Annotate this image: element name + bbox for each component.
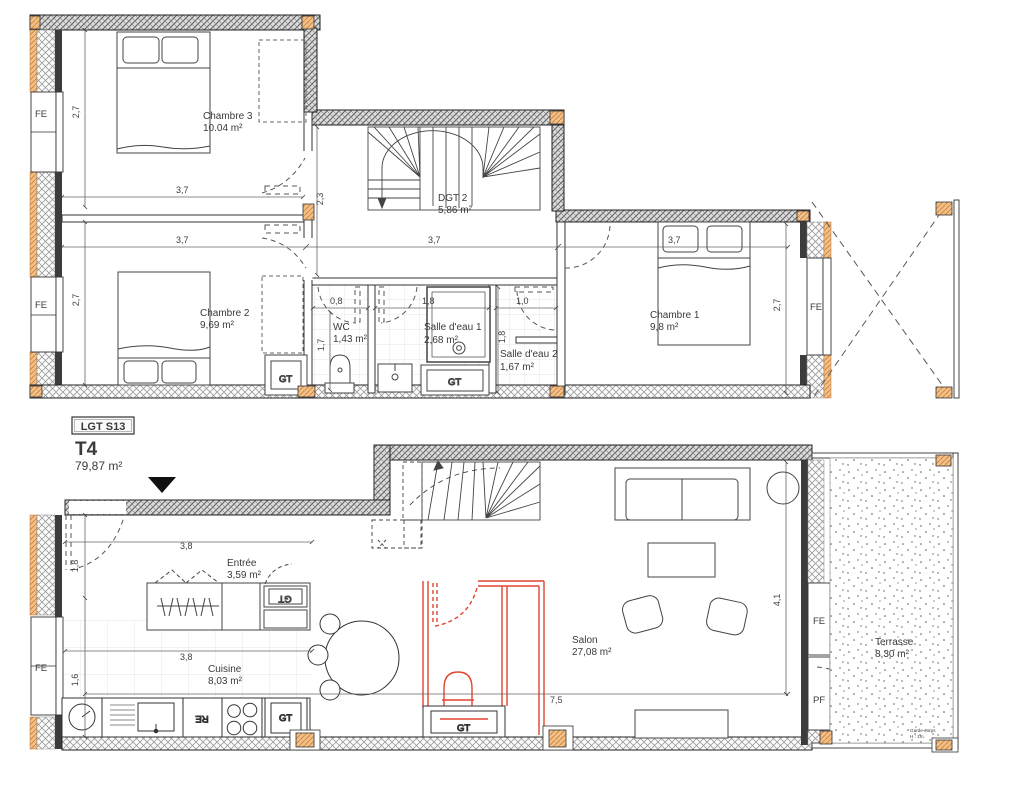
gt2-label: GT xyxy=(448,377,461,388)
fe-label-left-bottom: FE xyxy=(35,300,47,311)
lower-floor-plan: FE FE PF Garde-corps H : 1m. xyxy=(30,445,958,752)
wardrobe-chambre3-icon xyxy=(259,40,306,122)
dim-chambre3-width: 3,7 xyxy=(176,185,189,195)
armchair-right-icon xyxy=(705,596,749,636)
dim-entree-depth: 1,8 xyxy=(70,560,80,573)
floor-plan-drawing: FE FE FE xyxy=(0,0,1018,800)
window-fe-right: FE xyxy=(807,258,831,355)
dgt2-area: 5,86 m² xyxy=(438,205,473,216)
duct-gt-entree-box: GT xyxy=(264,586,307,607)
sofa-top-icon xyxy=(615,468,750,520)
dim-dgt2-depth: 2,3 xyxy=(315,193,325,206)
chambre3-door-icon xyxy=(262,158,305,193)
red-door-swing-icon xyxy=(435,588,477,626)
duct-gt2-box: GT xyxy=(421,365,489,395)
duct-gt-wc-box: GT xyxy=(423,706,505,737)
dgt2-name: DGT 2 xyxy=(438,193,468,204)
terrasse-area: 8,30 m² xyxy=(875,649,910,660)
chambre2-area: 9,69 m² xyxy=(200,320,235,331)
entree-name: Entrée xyxy=(227,558,257,569)
dining-table-icon xyxy=(308,614,399,700)
unit-area: 79,87 m² xyxy=(75,459,122,473)
dim-sde2-depth: 1,8 xyxy=(497,331,507,344)
chambre3-name: Chambre 3 xyxy=(203,111,253,122)
dim-chambre2-depth: 2,7 xyxy=(71,294,81,307)
title-block: LGT S13 T4 79,87 m² xyxy=(72,417,176,493)
washbasin-icon xyxy=(378,364,412,392)
kitchen-counter: RE GT xyxy=(62,698,310,737)
chambre1-area: 9,8 m² xyxy=(650,322,679,333)
window-fe-left-top: FE xyxy=(31,92,63,172)
sde1-name: Salle d'eau 1 xyxy=(424,322,482,333)
dim-wc-width: 0,8 xyxy=(330,296,343,306)
sde2-name: Salle d'eau 2 xyxy=(500,349,558,360)
wardrobe-chambre2-icon xyxy=(262,276,303,353)
armchair-left-icon xyxy=(620,594,664,635)
chambre3-door-leaf xyxy=(265,186,300,194)
window-fe-lower-right: FE xyxy=(808,583,830,655)
bed-chambre2-icon xyxy=(118,272,210,385)
bed-chambre3-icon xyxy=(117,32,210,153)
gt-entree-label: GT xyxy=(278,593,291,604)
dim-wc-depth: 1,7 xyxy=(316,339,326,352)
chambre2-door-icon xyxy=(262,238,306,268)
dim-sde1-width: 1,8 xyxy=(422,296,435,306)
cuisine-area: 8,03 m² xyxy=(208,676,243,687)
wc-area: 1,43 m² xyxy=(333,334,368,345)
gt1-label: GT xyxy=(279,374,292,385)
dim-corridor-width: 3,7 xyxy=(428,235,441,245)
dim-sde2-entry: 1,0 xyxy=(516,296,529,306)
chambre1-door-icon xyxy=(565,225,610,268)
dim-chambre3-depth: 2,7 xyxy=(71,106,81,119)
fe-label-right: FE xyxy=(810,302,822,313)
fe-label-lower-right: FE xyxy=(813,616,825,627)
void-cross-icon xyxy=(812,200,959,398)
fridge-label: RE xyxy=(195,713,208,724)
terrace-floor xyxy=(830,458,953,743)
red-toilet-icon xyxy=(442,672,474,708)
red-door-leaf xyxy=(433,583,437,625)
unit-type: T4 xyxy=(75,439,98,460)
entrance-opening xyxy=(69,501,126,514)
chambre3-area: 10.04 m² xyxy=(203,123,243,134)
dim-entree-width: 3,8 xyxy=(180,541,193,551)
upper-floor-plan: FE FE FE xyxy=(30,15,959,398)
dim-chambre1-depth: 2,7 xyxy=(772,299,782,312)
chambre2-door-leaf xyxy=(265,225,300,233)
dim-salon-width: 7,5 xyxy=(550,695,563,705)
entree-area: 3,59 m² xyxy=(227,570,262,581)
garde-corps-note2: H : 1m. xyxy=(910,734,925,739)
window-fe-lower-left: FE xyxy=(31,617,63,715)
fe-label-lower-left: FE xyxy=(35,663,47,674)
gt-cuisine-label: GT xyxy=(279,713,292,724)
side-table-icon xyxy=(767,472,799,504)
sde2-area: 1,67 m² xyxy=(500,362,535,373)
staircase-lower-icon xyxy=(372,461,540,548)
dim-cuisine-depth: 1,6 xyxy=(70,674,80,687)
window-fe-left-bottom: FE xyxy=(31,277,63,352)
unit-pointer-icon xyxy=(148,477,176,493)
pf-label-lower-right: PF xyxy=(813,695,825,706)
balcony-rail-icon xyxy=(954,200,959,398)
sofa-bottom-icon xyxy=(635,710,728,738)
garde-corps-note1: Garde-corps xyxy=(910,728,936,733)
chambre1-name: Chambre 1 xyxy=(650,310,700,321)
dim-chambre1-width: 3,7 xyxy=(668,235,681,245)
sde1-area: 2,68 m² xyxy=(424,335,459,346)
floor-plan-sheet: FE FE FE xyxy=(0,0,1018,800)
salon-name: Salon xyxy=(572,635,598,646)
gt-wc-label: GT xyxy=(457,723,470,734)
cuisine-name: Cuisine xyxy=(208,664,242,675)
unit-code: LGT S13 xyxy=(81,421,126,433)
terrasse-name: Terrasse xyxy=(875,637,914,648)
wc-name: WC xyxy=(333,322,350,333)
dim-salon-depth: 4,1 xyxy=(772,594,782,607)
salon-area: 27,08 m² xyxy=(572,647,612,658)
coffee-table-icon xyxy=(648,543,715,577)
dim-cuisine-width: 3,8 xyxy=(180,652,193,662)
chambre2-name: Chambre 2 xyxy=(200,308,250,319)
dim-chambre2-width: 3,7 xyxy=(176,235,189,245)
terrace: Garde-corps H : 1m. xyxy=(812,453,958,752)
fe-label-left-top: FE xyxy=(35,109,47,120)
